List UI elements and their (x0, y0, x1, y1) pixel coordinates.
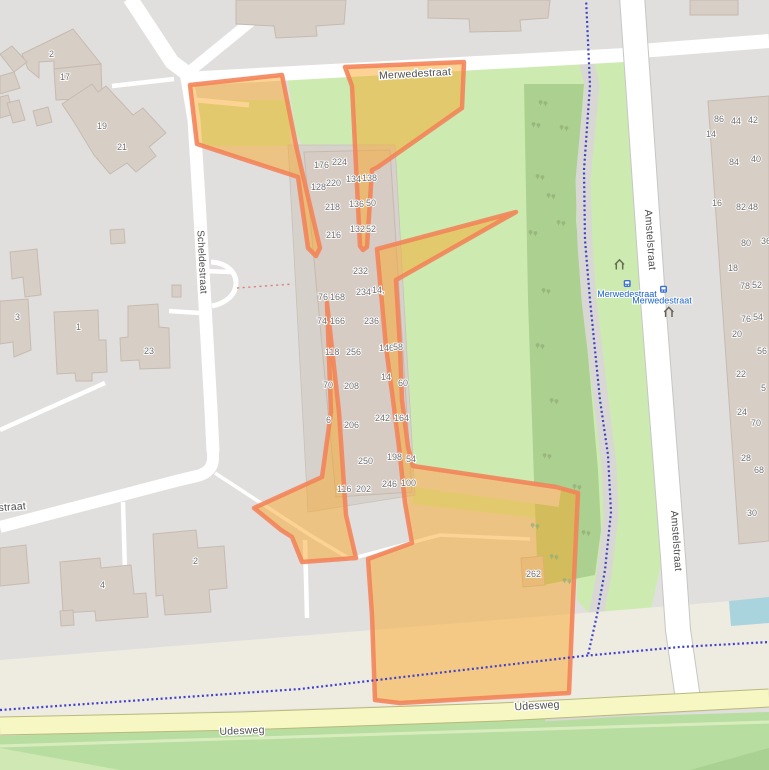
svg-text:44: 44 (731, 116, 741, 126)
svg-text:76: 76 (741, 314, 751, 324)
svg-text:2: 2 (193, 556, 198, 566)
svg-text:250: 250 (358, 456, 373, 466)
svg-text:16: 16 (712, 198, 722, 208)
svg-text:4: 4 (100, 580, 105, 590)
svg-text:17: 17 (60, 72, 70, 82)
svg-text:24: 24 (737, 407, 747, 417)
svg-text:164: 164 (394, 413, 409, 423)
svg-text:21: 21 (117, 142, 127, 152)
svg-text:1: 1 (76, 322, 81, 332)
svg-text:Merwedestraat: Merwedestraat (632, 296, 692, 306)
svg-text:19: 19 (97, 121, 107, 131)
svg-text:52: 52 (366, 224, 376, 234)
svg-text:134: 134 (346, 174, 361, 184)
svg-text:218: 218 (325, 202, 340, 212)
svg-text:74: 74 (317, 316, 327, 326)
svg-text:42: 42 (748, 115, 758, 125)
svg-text:202: 202 (356, 484, 371, 494)
svg-text:166: 166 (330, 316, 345, 326)
svg-text:136: 136 (349, 199, 364, 209)
svg-text:236: 236 (364, 316, 379, 326)
svg-text:28: 28 (741, 453, 751, 463)
svg-text:5: 5 (761, 383, 766, 393)
svg-text:242: 242 (375, 413, 390, 423)
svg-text:224: 224 (332, 157, 347, 167)
svg-text:232: 232 (353, 266, 368, 276)
svg-text:80: 80 (741, 238, 751, 248)
svg-text:68: 68 (754, 465, 764, 475)
svg-text:84: 84 (729, 157, 739, 167)
svg-text:220: 220 (326, 178, 341, 188)
svg-text:100: 100 (401, 478, 416, 488)
svg-text:78: 78 (740, 281, 750, 291)
svg-text:3: 3 (15, 312, 20, 322)
svg-text:23: 23 (144, 346, 154, 356)
svg-text:198: 198 (387, 452, 402, 462)
svg-text:206: 206 (344, 420, 359, 430)
svg-text:22: 22 (736, 369, 746, 379)
svg-text:40: 40 (751, 154, 761, 164)
svg-text:70: 70 (751, 418, 761, 428)
svg-text:14: 14 (381, 372, 391, 382)
svg-text:50: 50 (366, 198, 376, 208)
svg-text:176: 176 (314, 160, 329, 170)
svg-text:138: 138 (362, 173, 377, 183)
svg-text:82: 82 (736, 202, 746, 212)
svg-text:216: 216 (326, 230, 341, 240)
svg-text:60: 60 (398, 378, 408, 388)
svg-text:208: 208 (344, 381, 359, 391)
svg-text:30: 30 (747, 508, 757, 518)
svg-text:52: 52 (752, 280, 762, 290)
svg-text:36: 36 (761, 236, 769, 246)
svg-text:132: 132 (350, 224, 365, 234)
svg-text:Udesweg: Udesweg (219, 724, 265, 738)
svg-text:20: 20 (732, 329, 742, 339)
svg-text:76: 76 (318, 292, 328, 302)
svg-text:58: 58 (393, 342, 403, 352)
svg-text:54: 54 (406, 454, 416, 464)
svg-text:2: 2 (49, 49, 54, 59)
svg-text:70: 70 (323, 380, 333, 390)
svg-text:256: 256 (346, 347, 361, 357)
svg-text:118: 118 (325, 347, 339, 357)
svg-text:116: 116 (337, 484, 351, 494)
svg-text:146: 146 (379, 343, 394, 353)
svg-text:6: 6 (326, 415, 331, 425)
svg-text:128: 128 (311, 182, 326, 192)
svg-text:168: 168 (330, 292, 345, 302)
svg-text:18: 18 (728, 263, 738, 273)
svg-text:234: 234 (356, 287, 371, 297)
svg-text:14: 14 (706, 129, 716, 139)
svg-text:48: 48 (748, 202, 758, 212)
svg-text:246: 246 (382, 479, 397, 489)
svg-text:86: 86 (714, 114, 724, 124)
svg-text:56: 56 (757, 346, 767, 356)
svg-text:54: 54 (753, 312, 763, 322)
svg-text:14,: 14, (372, 285, 385, 295)
svg-text:262: 262 (526, 569, 541, 579)
